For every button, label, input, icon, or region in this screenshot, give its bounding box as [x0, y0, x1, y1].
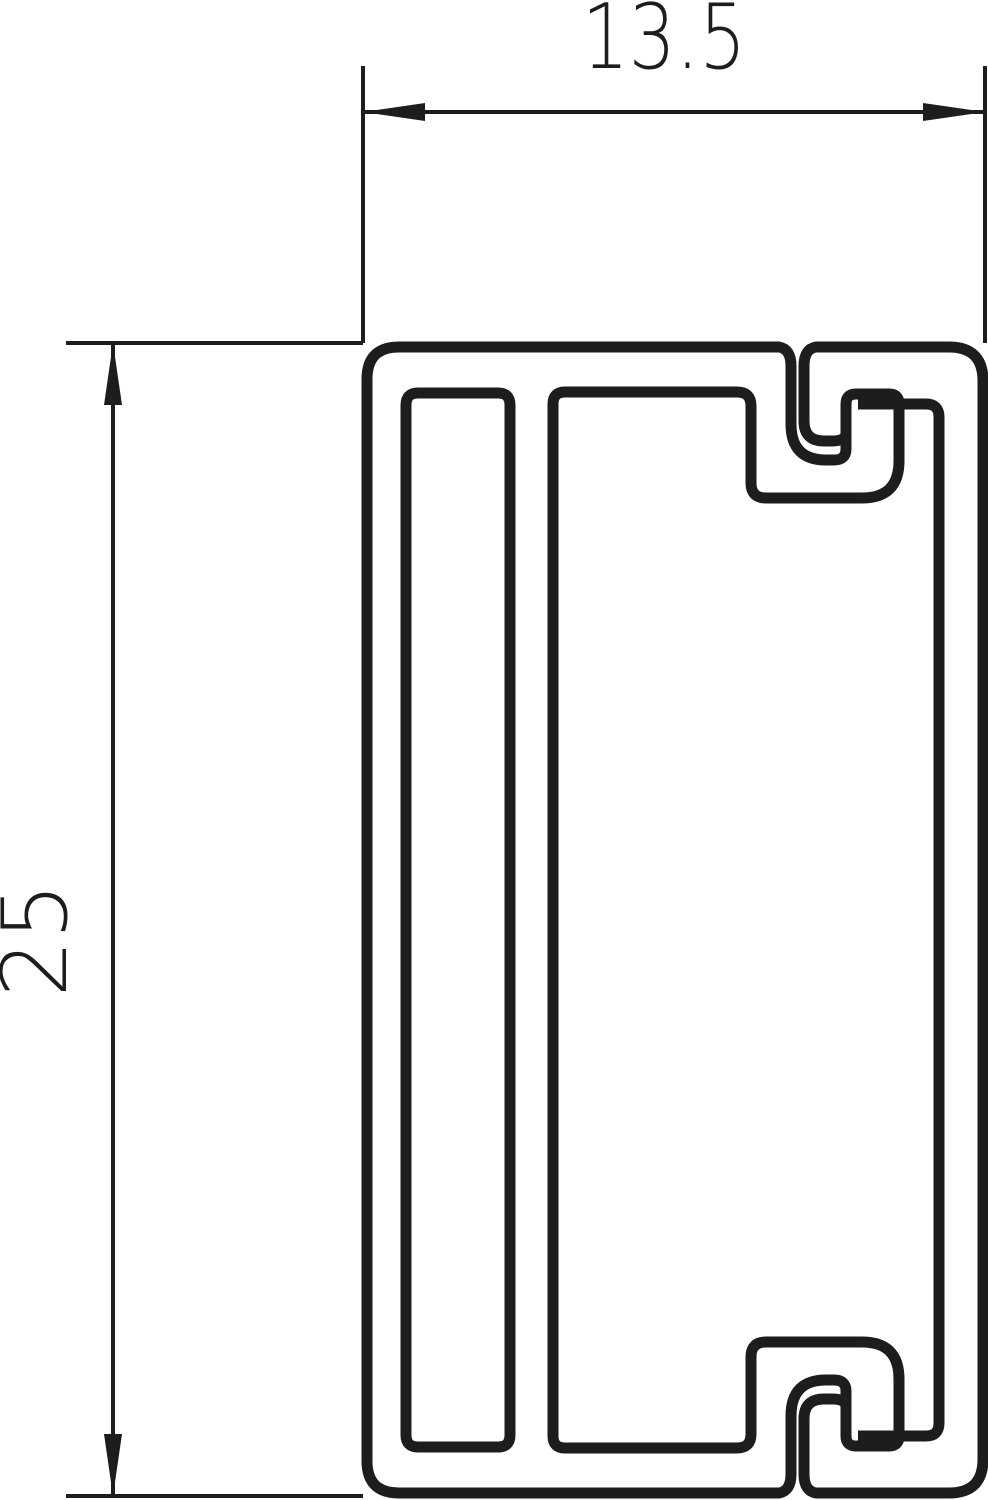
height-dim-arrow-top-icon: [104, 343, 122, 405]
height-dim-arrow-bottom-icon: [104, 1434, 122, 1496]
height-dimension: [104, 343, 122, 1496]
width-dim-arrow-left-icon: [363, 103, 425, 121]
profile-body-outline: [367, 347, 846, 1493]
drawing-canvas: 13.5 25: [0, 0, 988, 1500]
profile-cross-section-drawing: 13.5 25: [0, 0, 988, 1500]
width-dim-arrow-right-icon: [923, 103, 985, 121]
extension-lines: [66, 66, 985, 1496]
profile-inner-rib-outline: [406, 393, 510, 1447]
height-dimension-label: 25: [0, 883, 88, 998]
width-dimension-label: 13.5: [582, 0, 746, 90]
profile-inner-cavity-outline: [553, 392, 899, 1448]
profile-cover-outline: [804, 347, 983, 1493]
profile-cover-inner-wall: [858, 404, 939, 1436]
width-dimension: [363, 103, 985, 121]
